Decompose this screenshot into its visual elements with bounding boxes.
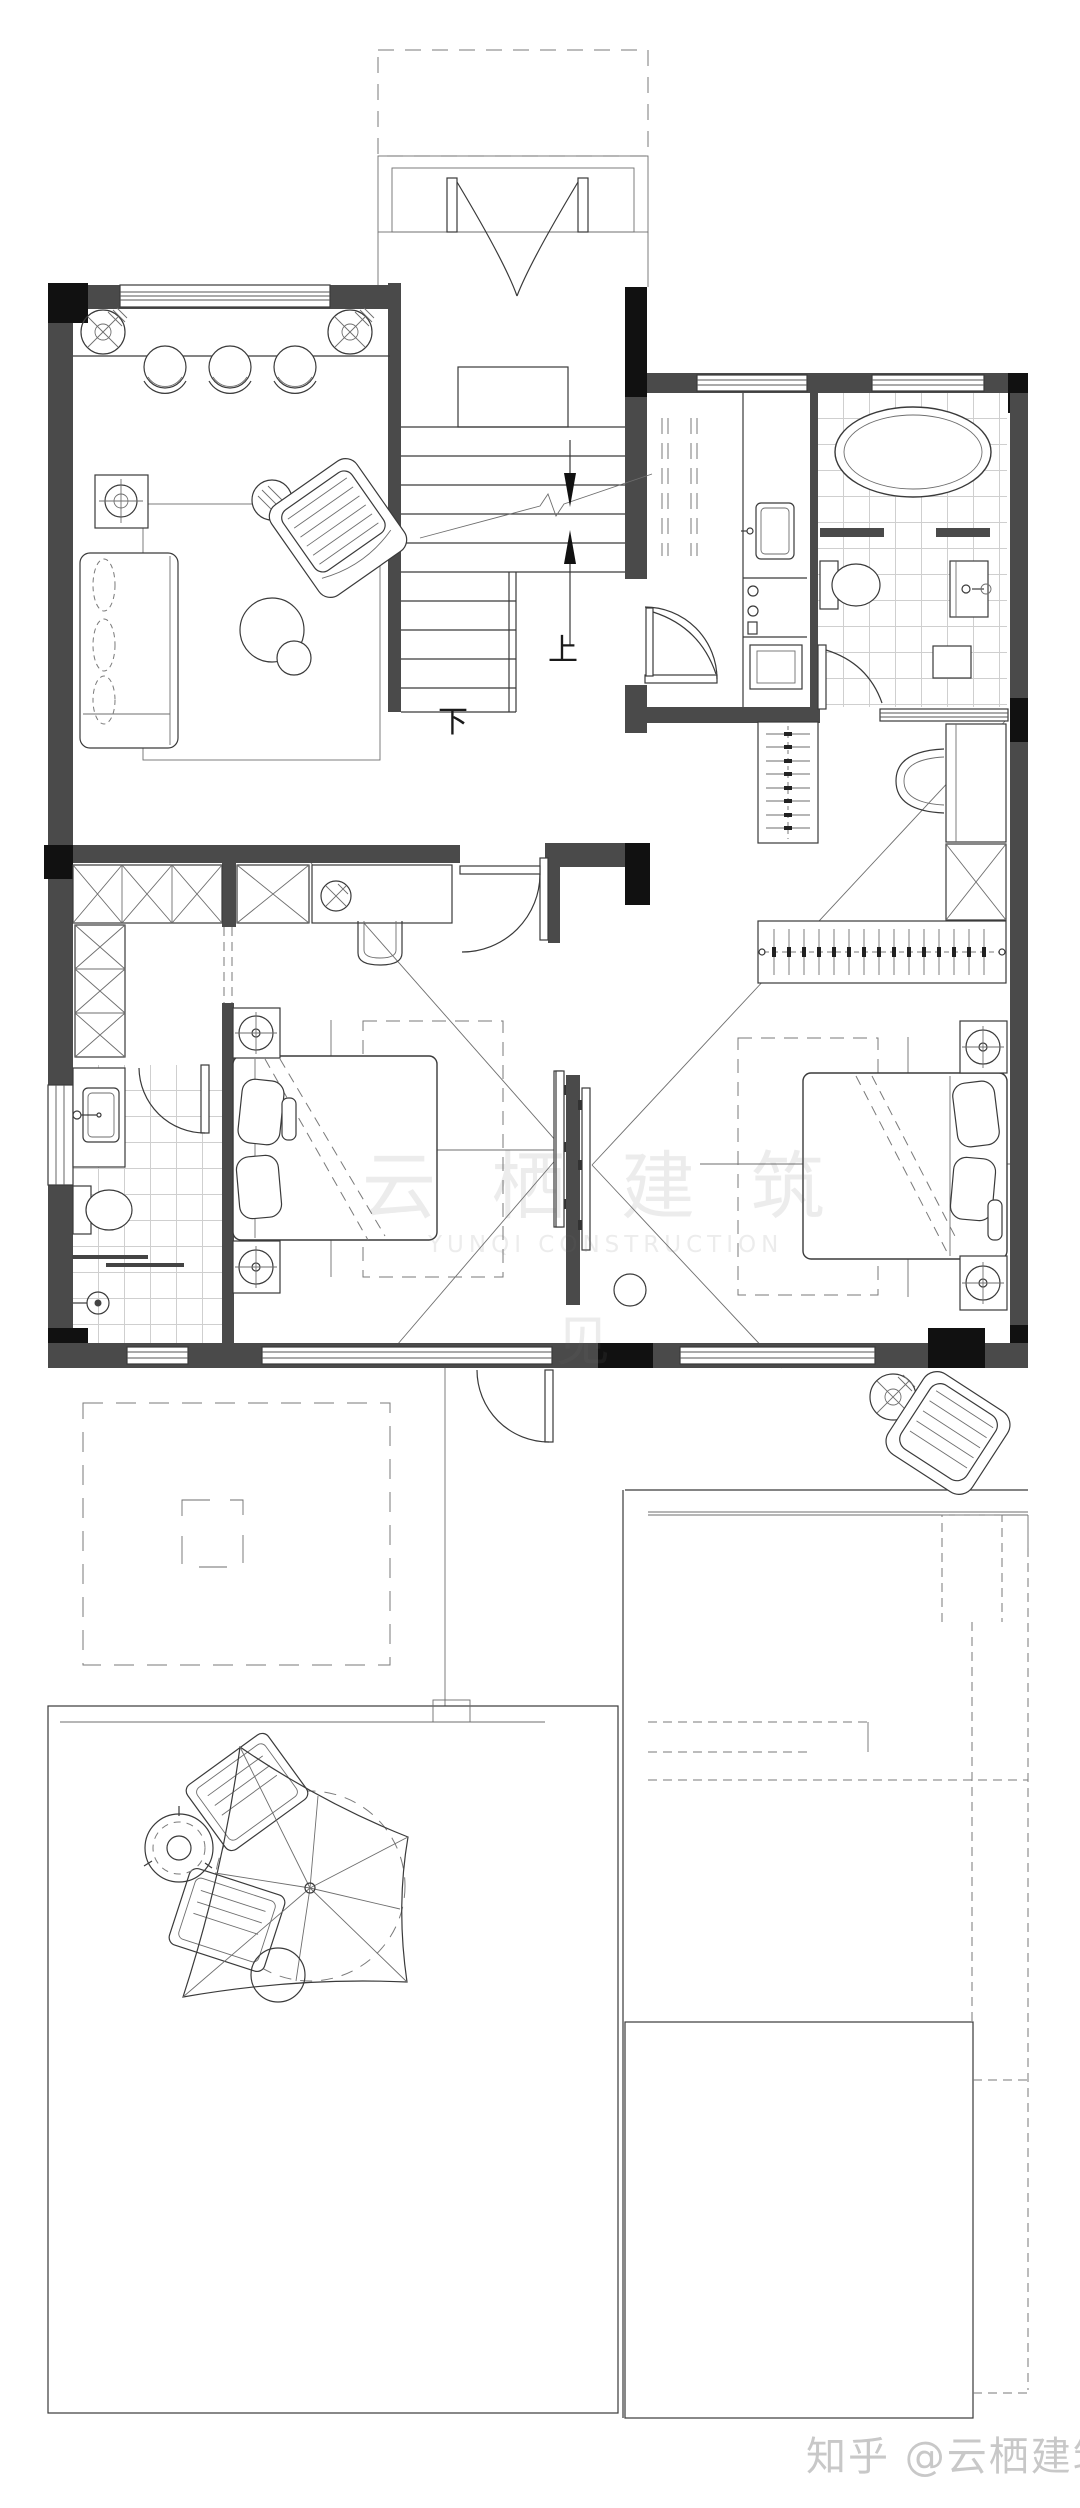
main-bathroom (818, 407, 991, 709)
bathtub (835, 407, 991, 497)
wardrobe-cell (237, 865, 309, 923)
bar-stool (144, 346, 186, 393)
ensuite-bathroom (72, 1065, 209, 1314)
laundry-sink (741, 503, 794, 559)
side-table-lamp (95, 475, 148, 528)
nightstand-lamp (233, 1008, 280, 1058)
entry-double-door (447, 178, 588, 296)
round-coffee-tables (240, 598, 311, 675)
nightstand-lamp (960, 1256, 1007, 1310)
bar-stool (209, 346, 251, 393)
laundry-room (645, 393, 807, 707)
bathroom-door (818, 645, 882, 709)
ensuite-door (139, 1065, 209, 1133)
nightstand-lamp (960, 1021, 1007, 1073)
staircase (401, 367, 652, 712)
balcony (625, 1366, 1028, 1512)
wardrobe-column (75, 925, 125, 1057)
right-dressing-area (758, 722, 1006, 983)
axis-and-sight-lines (233, 719, 1028, 1368)
lounge-chair (183, 1730, 311, 1854)
credit-watermark: 知乎 @云栖建筑 (806, 2434, 1080, 2480)
desk (312, 865, 452, 923)
shelf-unit (946, 844, 1006, 920)
toilet (820, 561, 880, 609)
laundry-door (645, 607, 717, 683)
faint-watermark-cn: 云 栖 建 筑 (362, 1144, 841, 1230)
dryer-appliance (750, 645, 802, 689)
vanity (73, 1068, 125, 1167)
floor-plan-drawing: 上 下 (0, 0, 1080, 2508)
lounge-chair (167, 1867, 287, 1974)
bathroom-vanity (950, 561, 991, 617)
floor-lamp (614, 1274, 646, 1306)
floor-plan-canvas: 上 下 (0, 0, 1080, 2508)
ceiling-speaker-icon (328, 308, 374, 354)
wardrobe-hanging-rail (758, 921, 1006, 983)
entry-porch (378, 50, 648, 287)
wardrobe-row (73, 865, 222, 923)
shower-stool (933, 646, 971, 678)
balcony-door (477, 1370, 553, 1442)
nightstand-lamp (233, 1241, 280, 1293)
stairs-up-label: 上 (548, 633, 578, 668)
desk-chair (896, 749, 944, 813)
bar-stool (274, 346, 316, 393)
faint-watermark-en: YUNQI CONSTRUCTION (427, 1232, 783, 1258)
faint-watermark-char: 见 (556, 1310, 610, 1373)
stairs-down-label: 下 (438, 705, 468, 740)
floor-drain (73, 1292, 109, 1314)
vanity-desk (946, 724, 1006, 842)
living-to-hall-door (460, 866, 540, 952)
shower-screen (72, 1255, 184, 1267)
sliding-door (540, 858, 548, 940)
stairhall-door (646, 608, 716, 676)
washing-machine (743, 578, 807, 637)
sofa (80, 553, 178, 748)
toilet (73, 1186, 132, 1234)
balcony-armchair (880, 1366, 1016, 1501)
patio-umbrella-set (144, 1730, 408, 2002)
hanging-rail-vertical (758, 722, 818, 843)
